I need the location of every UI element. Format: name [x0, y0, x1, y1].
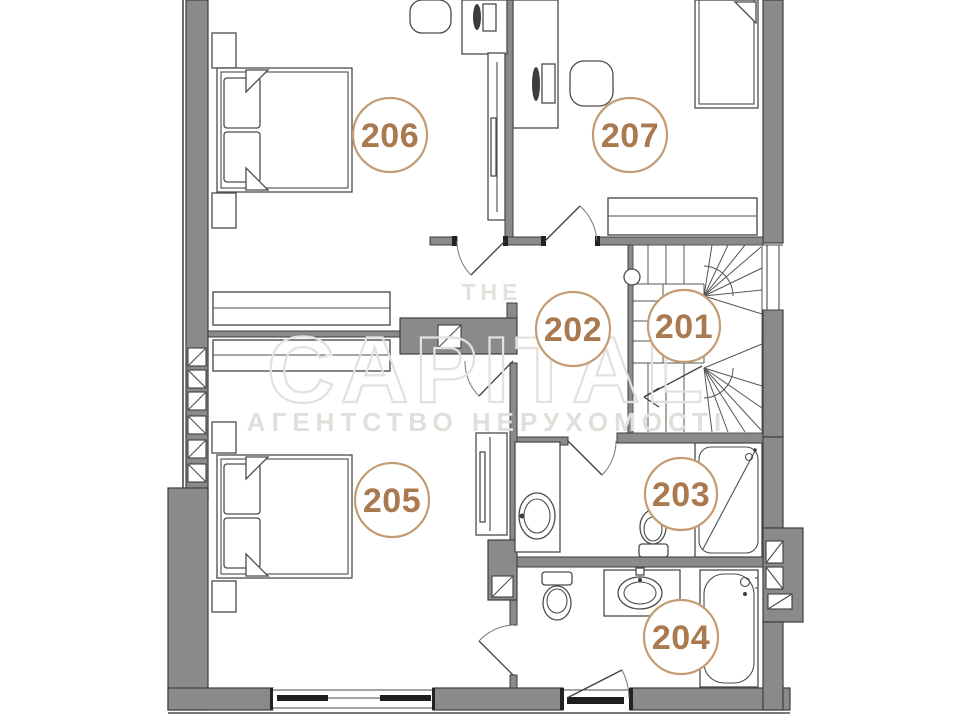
wall-right-203 [763, 437, 783, 528]
door-207 [545, 206, 597, 241]
svg-text:201: 201 [655, 308, 713, 346]
door-jamb [503, 236, 508, 246]
pillow [224, 132, 260, 182]
wall-stub-hall [507, 303, 517, 318]
room-label-201: 201 [648, 290, 720, 362]
wall-203-204 [517, 557, 763, 567]
office-chair [570, 61, 613, 106]
wall-202-top-right [598, 237, 763, 245]
monitor [532, 64, 555, 103]
svg-text:203: 203 [652, 476, 710, 514]
stair-newel-post [624, 269, 640, 285]
nightstand [212, 193, 236, 228]
room-label-204: 204 [644, 600, 718, 674]
tall-cabinet [488, 53, 505, 220]
watermark-the: THE [462, 279, 523, 305]
room-206-bedroom [212, 0, 507, 325]
wall-right-upper [763, 0, 783, 243]
monitor [473, 4, 496, 31]
wall-right-lower [763, 622, 783, 710]
floor-plan-page: THE CAPITAL АГЕНТСТВО НЕРУХОМОСТІ 206 20… [0, 0, 960, 720]
tall-cabinet [476, 433, 507, 535]
single-bed [695, 0, 758, 108]
nightstand [212, 422, 236, 453]
door-threshold-204 [564, 688, 629, 710]
window-stair-right [763, 245, 783, 310]
double-bed [217, 455, 352, 578]
svg-text:207: 207 [601, 117, 659, 155]
pillow [224, 518, 260, 568]
svg-text:204: 204 [652, 619, 710, 657]
wall-202-top-left [505, 237, 545, 245]
room-label-202: 202 [536, 292, 610, 366]
wall-bottom-2 [433, 688, 563, 710]
nightstand [212, 581, 236, 612]
room-label-205: 205 [355, 463, 429, 537]
office-chair [410, 0, 451, 33]
door-jamb [629, 688, 633, 710]
pillow [224, 464, 260, 514]
wall-right-mid [763, 310, 783, 437]
nightstand [212, 33, 236, 68]
pillow [224, 78, 260, 128]
bathroom-203 [515, 442, 762, 557]
watermark-tagline: АГЕНТСТВО НЕРУХОМОСТІ [247, 407, 727, 437]
double-bed [217, 68, 352, 192]
window-bottom-205 [273, 688, 432, 710]
door-jamb [560, 688, 564, 710]
wall-left-lower [168, 488, 208, 710]
svg-text:206: 206 [361, 117, 419, 155]
room-label-207: 207 [593, 98, 667, 172]
svg-text:205: 205 [363, 482, 421, 520]
floor-plan: THE CAPITAL АГЕНТСТВО НЕРУХОМОСТІ 206 20… [0, 0, 960, 720]
door-jamb [595, 236, 600, 246]
door-204-inner [479, 625, 513, 675]
room-label-206: 206 [353, 98, 427, 172]
sink [519, 493, 555, 539]
svg-text:202: 202 [544, 311, 602, 349]
toilet [542, 572, 572, 620]
door-jamb [452, 236, 457, 246]
door-203 [568, 441, 616, 475]
door-206 [457, 241, 505, 275]
wall-205-bath-lower [510, 675, 517, 688]
wall-bottom-1 [168, 688, 273, 710]
room-label-203: 203 [645, 458, 717, 530]
